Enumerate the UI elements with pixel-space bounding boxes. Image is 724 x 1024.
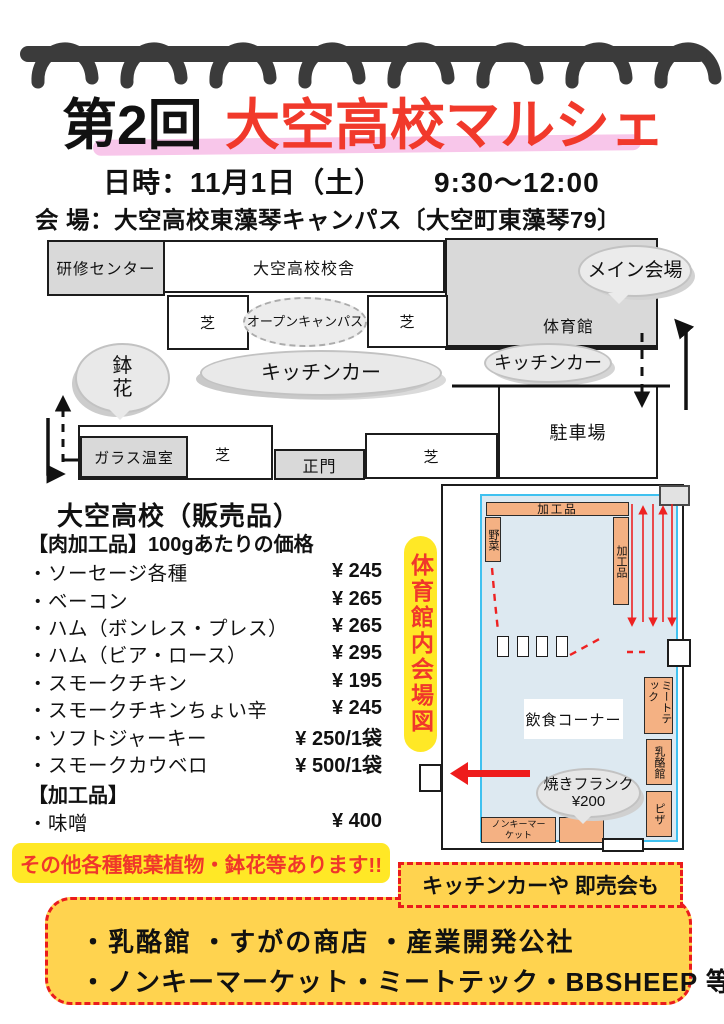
gym-door-left	[419, 764, 442, 792]
plants-note: その他各種観葉植物・鉢花等あります!!	[12, 843, 390, 883]
gym-booth-vegetables: 野菜	[485, 517, 501, 562]
event-date: 日時：11月1日（土）	[103, 161, 383, 201]
flyer-poster: 第2回 大空高校マルシェ 日時：11月1日（土） 9:30～12:00 会 場：…	[0, 0, 724, 1024]
potted-flowers-bubble: 鉢花	[75, 343, 170, 413]
bubble-tail	[572, 813, 594, 835]
price-list: ・ソーセージ各種 ¥ 245 ・ベーコン ¥ 265 ・ハム（ボンレス・プレス）…	[28, 558, 382, 777]
title-text: 大空高校マルシェ	[225, 94, 665, 156]
map-main-gate: 正門	[274, 449, 365, 480]
price-list-processed: ・味噌 ¥ 400	[28, 808, 382, 835]
gym-booth-dairy: 乳酪館	[646, 739, 672, 785]
gym-table	[517, 636, 529, 657]
price-row: ・ソフトジャーキー ¥ 250/1袋	[28, 722, 382, 749]
event-time: 9:30～12:00	[434, 161, 600, 201]
price-list-processed-section: 【加工品】	[28, 779, 128, 808]
gym-booth-pizza: ピザ	[646, 791, 672, 837]
gym-table	[556, 636, 568, 657]
map-lawn-1: 芝	[167, 295, 249, 350]
map-parking: 駐車場	[498, 385, 658, 479]
map-lawn-4: 芝	[365, 433, 498, 479]
price-row: ・ハム（ボンレス・プレス） ¥ 265	[28, 613, 382, 640]
frank-price-bubble: 焼きフランク ¥200	[536, 768, 641, 818]
map-training-center: 研修センター	[47, 240, 165, 296]
page-title: 第2回 大空高校マルシェ	[62, 80, 702, 160]
kitchen-car-bubble-2: キッチンカー	[484, 343, 612, 383]
vendors-box: ・乳酪館 ・すがの商店 ・産業開発公社 ・ノンキーマーケット・ミートテック・BB…	[45, 897, 692, 1005]
vendors-line-1: ・乳酪館 ・すがの商店 ・産業開発公社	[80, 922, 574, 959]
price-row: ・スモークチキンちょい辛 ¥ 245	[28, 695, 382, 722]
gym-door-right	[667, 639, 691, 667]
price-list-meat-section: 【肉加工品】100gあたりの価格	[28, 528, 314, 557]
price-row: ・スモークチキン ¥ 195	[28, 668, 382, 695]
title-edition: 第2回	[62, 94, 203, 156]
kitchen-car-bubble-1: キッチンカー	[200, 350, 442, 396]
gym-table	[497, 636, 509, 657]
map-greenhouse: ガラス温室	[80, 436, 188, 478]
map-school-building: 大空高校校舎	[163, 240, 445, 293]
main-venue-bubble: メイン会場	[578, 245, 692, 297]
price-row: ・味噌 ¥ 400	[28, 808, 382, 835]
gym-map-side-label: 体育館内会場図	[404, 536, 437, 752]
kitchen-note: キッチンカーや 即売会も	[398, 862, 683, 908]
gym-booth-nonkey-market: ノンキーマーケット	[481, 817, 556, 843]
price-row: ・スモークカウベロ ¥ 500/1袋	[28, 750, 382, 777]
gym-door-top-right	[659, 485, 690, 506]
gym-booth-processed-top: 加工品	[486, 502, 629, 516]
map-lawn-2: 芝	[367, 295, 448, 348]
bubble-tail	[608, 293, 630, 315]
gym-booth-meat-tech: ミートテック	[644, 677, 673, 734]
event-venue: 会 場：大空高校東藻琴キャンパス〔大空町東藻琴79〕	[35, 201, 621, 235]
open-campus-bubble: オープンキャンパス	[243, 297, 367, 347]
gym-food-corner: 飲食コーナー	[524, 699, 623, 739]
gym-booth-processed-right: 加工品	[613, 517, 629, 605]
price-row: ・ハム（ビア・ロース） ¥ 295	[28, 640, 382, 667]
gym-door-bottom	[602, 838, 644, 852]
price-row: ・ベーコン ¥ 265	[28, 585, 382, 612]
gym-table	[536, 636, 548, 657]
price-row: ・ソーセージ各種 ¥ 245	[28, 558, 382, 585]
vendors-line-2: ・ノンキーマーケット・ミートテック・BBSHEEP 等	[80, 962, 724, 999]
map-lawn-3-label: 芝	[215, 444, 230, 465]
